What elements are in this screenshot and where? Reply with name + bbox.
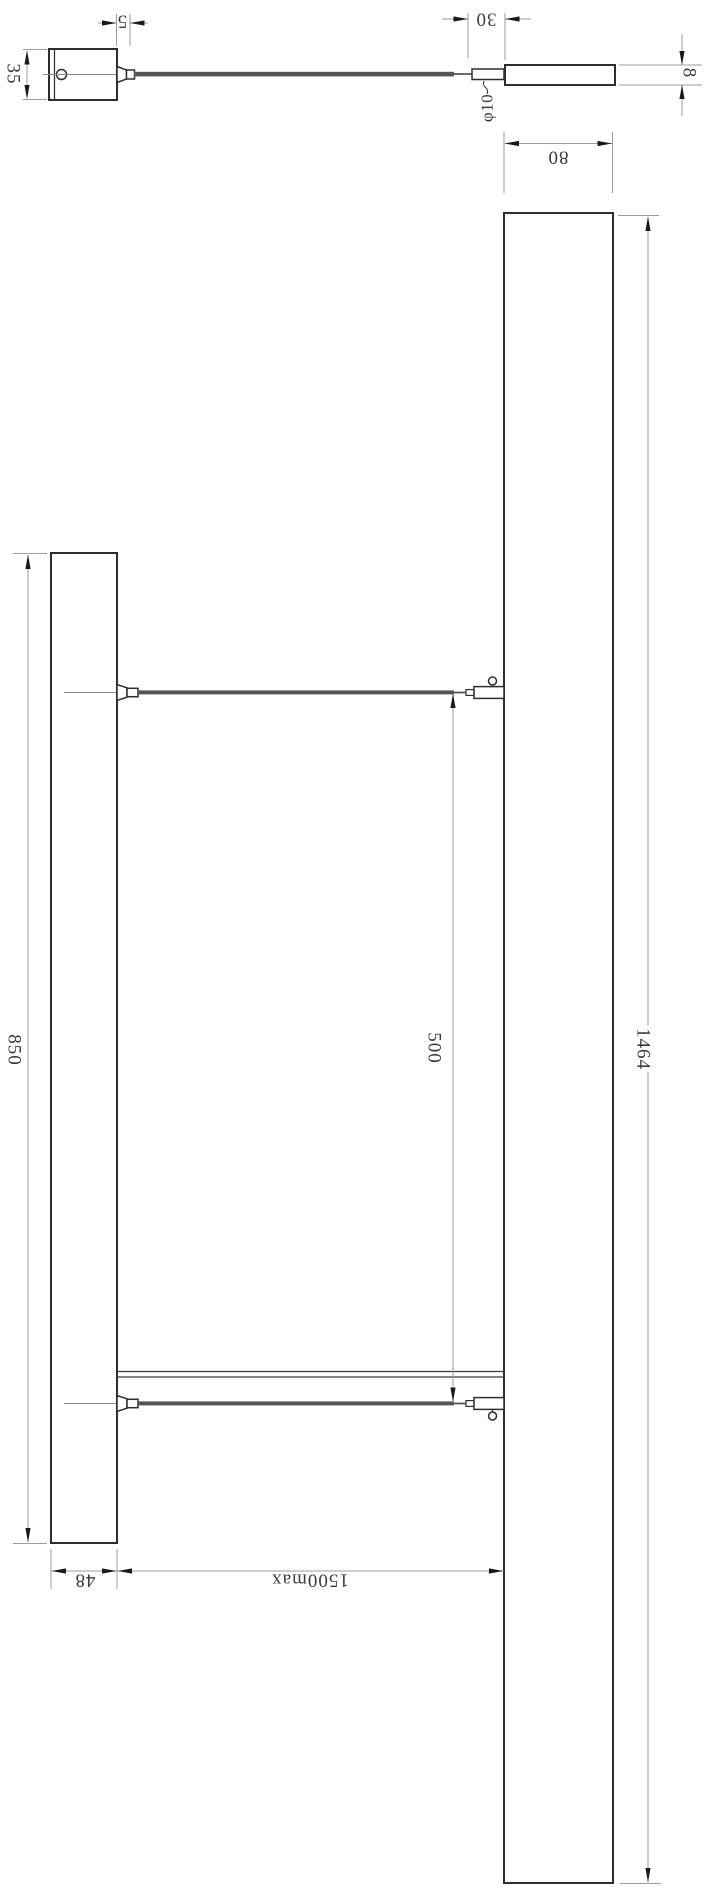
dim-500-lines — [450, 694, 455, 1403]
wire-gripper-cylinder-side — [127, 70, 135, 79]
dim-label-canopy-plate-height: 35 — [4, 64, 23, 85]
dim-label-end-cap-length: 30 — [476, 10, 497, 29]
wire2-lock-body — [474, 1398, 504, 1410]
lamp-dimension-drawing — [0, 0, 704, 1888]
side-view-wire-and-profile — [134, 65, 615, 94]
lamp-profile-front — [504, 213, 613, 1883]
diameter-leader-line — [483, 81, 487, 94]
side-view-canopy — [43, 49, 135, 100]
wire-end-sleeve — [472, 69, 504, 80]
dim-label-cable-diameter: φ10 — [479, 94, 496, 122]
wire2-cable — [138, 1401, 454, 1405]
lamp-profile-side — [505, 65, 615, 85]
wire-gripper-cone-side — [117, 67, 127, 83]
wire1-lock-body — [474, 687, 504, 699]
dim-label-canopy-width: 48 — [75, 1571, 96, 1590]
canopy-plate-front — [51, 553, 117, 1543]
wire1-release-ring — [489, 677, 497, 685]
dim-label-profile-width: 80 — [548, 148, 569, 167]
dim-label-canopy-length: 850 — [5, 1034, 24, 1066]
dim-label-fixture-length: 1464 — [634, 1026, 653, 1072]
dim-label-profile-thickness: 8 — [680, 68, 699, 79]
power-cable-pair — [117, 1372, 504, 1378]
suspension-wire-side — [134, 72, 454, 77]
dim-label-canopy-grip-offset: 5 — [117, 12, 128, 31]
front-view-bodies — [51, 213, 613, 1883]
wire2-lock-nipple — [466, 1401, 474, 1407]
dim-label-suspension-max: 1500max — [271, 1571, 349, 1590]
wire1-gripper-cylinder — [127, 688, 138, 696]
wire1-cable — [138, 690, 454, 694]
wire2-release-ring — [489, 1412, 497, 1420]
wire2-gripper-cylinder — [127, 1399, 138, 1407]
suspension-wire-1 — [64, 677, 504, 701]
suspension-wire-2 — [64, 1396, 504, 1421]
dimension-drawing-canvas: 35 5 30 φ10 8 80 850 500 1464 48 1500max — [0, 0, 704, 1888]
wire2-gripper-cone — [117, 1396, 127, 1412]
dim-label-wire-spacing: 500 — [425, 1032, 444, 1064]
wire1-gripper-cone — [117, 685, 127, 701]
wire1-lock-nipple — [466, 690, 474, 696]
